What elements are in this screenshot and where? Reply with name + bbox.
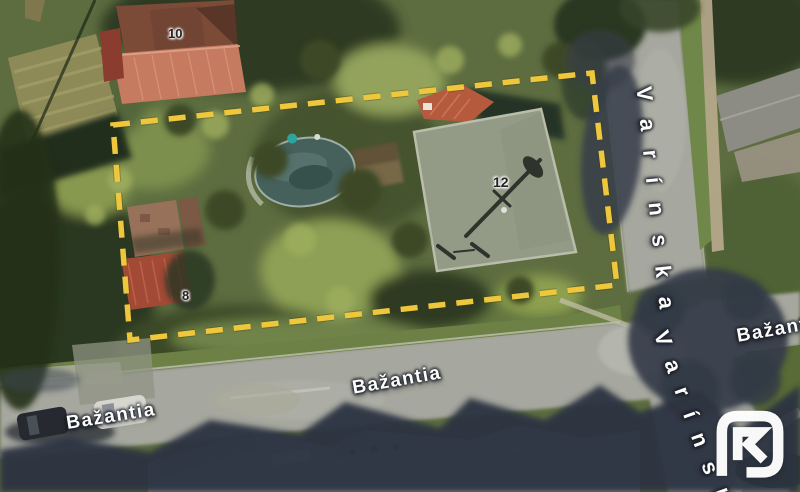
satellite-map-image: Varínska Varínska Bažantia Bažantia Baža… (0, 0, 800, 492)
boundary-polygon (113, 73, 617, 340)
property-boundary (0, 0, 800, 492)
reality-r-logo-icon (706, 402, 794, 490)
